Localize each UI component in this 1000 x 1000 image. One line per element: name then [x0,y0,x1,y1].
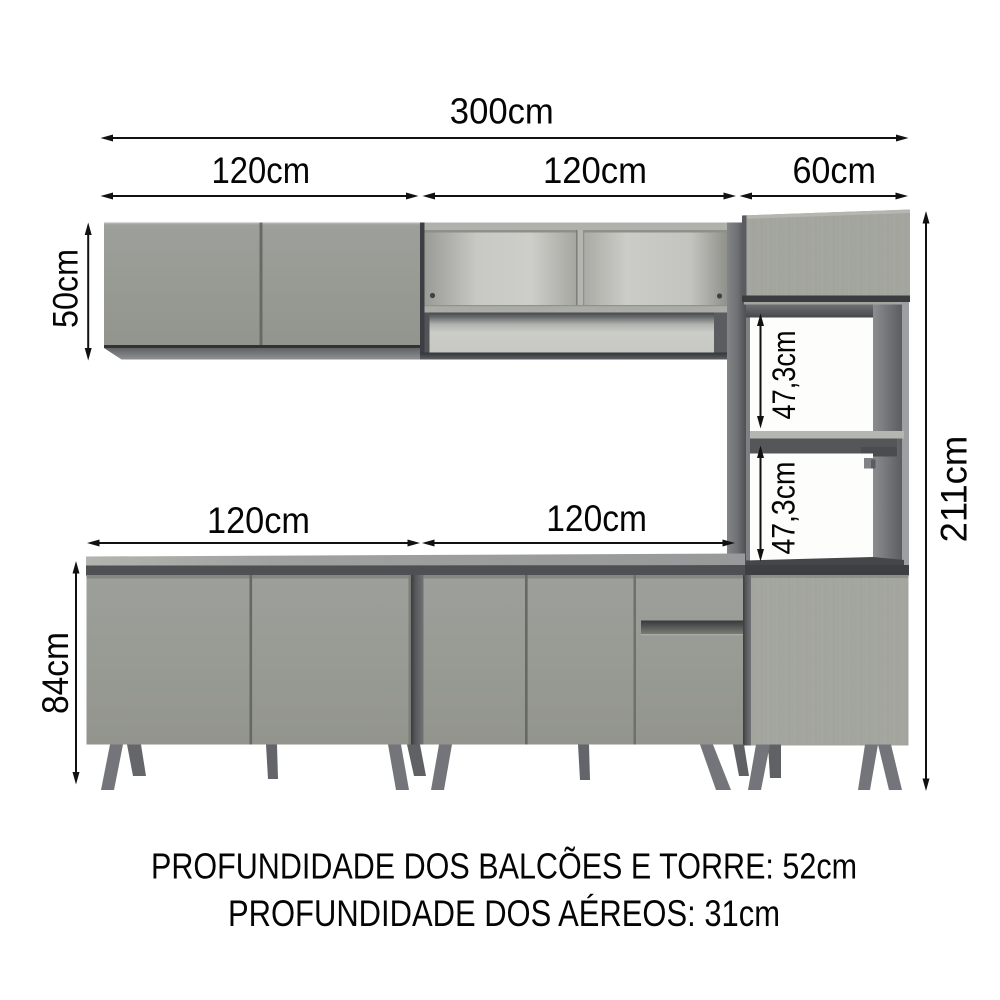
svg-text:47,3cm: 47,3cm [766,462,802,555]
svg-text:PROFUNDIDADE DOS BALCÕES E TOR: PROFUNDIDADE DOS BALCÕES E TORRE: 52cm [151,847,857,887]
svg-text:120cm: 120cm [546,498,647,539]
svg-text:PROFUNDIDADE DOS AÉREOS: 31cm: PROFUNDIDADE DOS AÉREOS: 31cm [228,893,780,934]
svg-text:300cm: 300cm [450,91,554,132]
svg-text:120cm: 120cm [543,150,647,191]
svg-text:60cm: 60cm [792,150,876,191]
svg-text:120cm: 120cm [212,150,311,191]
svg-text:47,3cm: 47,3cm [766,331,802,420]
svg-text:211cm: 211cm [934,436,975,543]
svg-text:50cm: 50cm [45,249,85,328]
svg-text:120cm: 120cm [207,500,310,541]
svg-text:84cm: 84cm [35,632,76,714]
